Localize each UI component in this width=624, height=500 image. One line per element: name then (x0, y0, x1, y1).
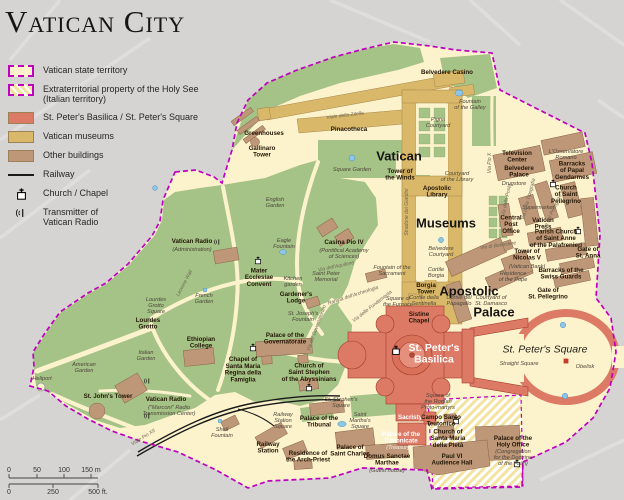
map-label: Square Garden (333, 167, 371, 173)
fountain (560, 322, 566, 328)
map-label: Kitchengarden (284, 276, 303, 288)
obelisk-icon (564, 359, 569, 364)
legend-label: Vatican museums (43, 130, 114, 141)
legend-swatch-extraterritorial (8, 84, 34, 96)
legend: Vatican state territoryExtraterritorial … (8, 64, 213, 227)
map-label: Square ofthe Furnace (383, 296, 413, 308)
map-label: St. Joseph'sFountain (288, 311, 318, 323)
map-label: AmericanGarden (71, 362, 96, 374)
map-label: Cortile dellaSentinella (409, 295, 439, 307)
map-label: Greenhouses (244, 130, 284, 137)
scale-bar: 050100150 m0250500 ft. (6, 465, 118, 495)
map-label: Palace of theGovernatorate (264, 332, 307, 346)
map-label: Belvedere Casino (421, 69, 473, 76)
map-label: Barracks of theSwiss Guards (538, 267, 584, 281)
legend-item: Railway (8, 168, 213, 181)
legend-swatch-railway (8, 169, 34, 181)
fountain (349, 155, 355, 161)
map-label: (Guest house) (369, 468, 405, 474)
railway-line-icon (8, 174, 34, 176)
map-label: Residenceof the Pope (499, 271, 528, 283)
map-label: Fountain of theSacrament (373, 265, 410, 277)
map-label: CortileBorgia (428, 267, 444, 279)
map-label: Saint PeterMemorial (312, 271, 341, 283)
legend-label: Other buildings (43, 149, 104, 160)
legend-swatch-church (8, 188, 34, 200)
legend-swatch-buildings_brown (8, 150, 34, 162)
legend-item: Vatican museums (8, 130, 213, 143)
legend-item: St. Peter's Basilica / St. Peter's Squar… (8, 111, 213, 124)
map-label: LourdesGrotto (136, 317, 161, 331)
map-label: RailwayStation (256, 441, 280, 455)
scalebar-label-ft: 250 (47, 489, 59, 495)
map-label: RailwayStationSquare (273, 412, 294, 430)
scalebar-label-m: 0 (7, 467, 11, 474)
map-label: Courtyard ofSt. Damasco (475, 295, 508, 307)
map-label: Palace of theHoly Office (494, 435, 533, 449)
legend-item: Church / Chapel (8, 187, 213, 200)
map-label: Parish Churchof Saint Anneof the Palafre… (530, 228, 583, 249)
transmitter-icon (14, 207, 29, 219)
map-label: Sacristy (398, 414, 423, 421)
vatican-city-map-page: VaticanMuseumsApostolicPalaceSt. Peter's… (0, 0, 624, 500)
legend-label: Church / Chapel (43, 187, 108, 198)
scalebar-label-ft: 500 ft. (88, 489, 108, 495)
map-label: Obelisk (576, 364, 596, 370)
map-label: Vatican Radio (146, 396, 187, 403)
map-label: St. John's Tower (84, 393, 133, 400)
map-label: SistineChapel (409, 311, 430, 325)
map-label: (Treasury) (386, 445, 412, 451)
map-label: ApostolicLibrary (423, 185, 452, 199)
legend-item: Extraterritorial property of the Holy Se… (8, 83, 213, 105)
map-label: Stradone dei Giardini (404, 188, 410, 236)
map-label: FrenchGarden (195, 293, 214, 305)
map-label: ItalianGarden (137, 350, 156, 362)
map-label: BorgiaTower (416, 282, 436, 296)
map-label: Cortile delPapagallo (446, 295, 472, 307)
fountain (438, 237, 443, 242)
map-label: Tower ofNicolas V (513, 248, 542, 262)
map-label: (Congregationfor the Doctrineof the Fait… (494, 449, 532, 467)
fountain (455, 90, 463, 96)
map-label: Church ofSanta Mariadella Pietà (431, 428, 466, 449)
map-label: Square ofthe RomanProto-martyrs (421, 393, 455, 411)
legend-items: Vatican state territoryExtraterritorial … (8, 64, 213, 227)
legend-item: Transmitter of Vatican Radio (8, 206, 213, 228)
map-label: Casina Pio IV (324, 239, 364, 246)
page-title: Vatican City (5, 4, 185, 40)
map-label: Campo SantoTeutonico (421, 414, 461, 428)
fountain (338, 421, 346, 426)
fountain (562, 393, 568, 399)
map-label: Vatican (376, 149, 422, 164)
legend-label: Extraterritorial property of the Holy Se… (43, 83, 199, 105)
map-label: ("Marconi" RadioTransmission Center) (142, 405, 195, 417)
legend-label: St. Peter's Basilica / St. Peter's Squar… (43, 111, 198, 122)
map-label: Drugstore (502, 181, 527, 187)
legend-item: Vatican state territory (8, 64, 213, 77)
scalebar-label-m: 50 (33, 467, 41, 474)
church-icon (14, 186, 29, 201)
legend-swatch-basilica_red (8, 112, 34, 124)
fountain (203, 288, 207, 292)
map-label: BelvedereCourtyard (428, 246, 454, 258)
fountain (218, 419, 222, 423)
map-label: Pinacotheca (331, 126, 368, 133)
map-label: Palace of theCanonicate (382, 431, 421, 445)
map-label: (Administration) (172, 247, 211, 253)
legend-label: Railway (43, 168, 75, 179)
map-label: Straight Square (500, 361, 539, 367)
map-label: Heliport (32, 376, 52, 382)
legend-swatch-transmitter (8, 207, 34, 219)
map-label: EnglishGarden (266, 197, 285, 209)
map-label: St. Peter'sBasilica (409, 342, 460, 366)
map-label: Tower ofthe Winds (385, 168, 415, 182)
fountain (280, 250, 287, 255)
scalebar-label-ft: 0 (7, 489, 11, 495)
legend-label: Transmitter of Vatican Radio (43, 206, 98, 228)
map-label: Vatican Radio (172, 238, 213, 245)
map-label: Residence ofthe Arch-Priest (286, 450, 330, 464)
map-label: LourdesGrottoSquare (146, 297, 166, 315)
legend-item: Other buildings (8, 149, 213, 162)
legend-label: Vatican state territory (43, 64, 127, 75)
map-label: EthiopianCollege (187, 336, 215, 350)
legend-swatch-territory (8, 65, 34, 77)
map-label: Museums (416, 216, 476, 231)
scalebar-label-m: 150 m (81, 467, 101, 474)
legend-swatch-museums_tan (8, 131, 34, 143)
scalebar-label-m: 100 (58, 467, 70, 474)
map-label: St. Peter's Square (503, 344, 588, 356)
map-label: Via Pio X (487, 152, 493, 173)
map-label: Gate ofSt. Anna (576, 246, 601, 260)
